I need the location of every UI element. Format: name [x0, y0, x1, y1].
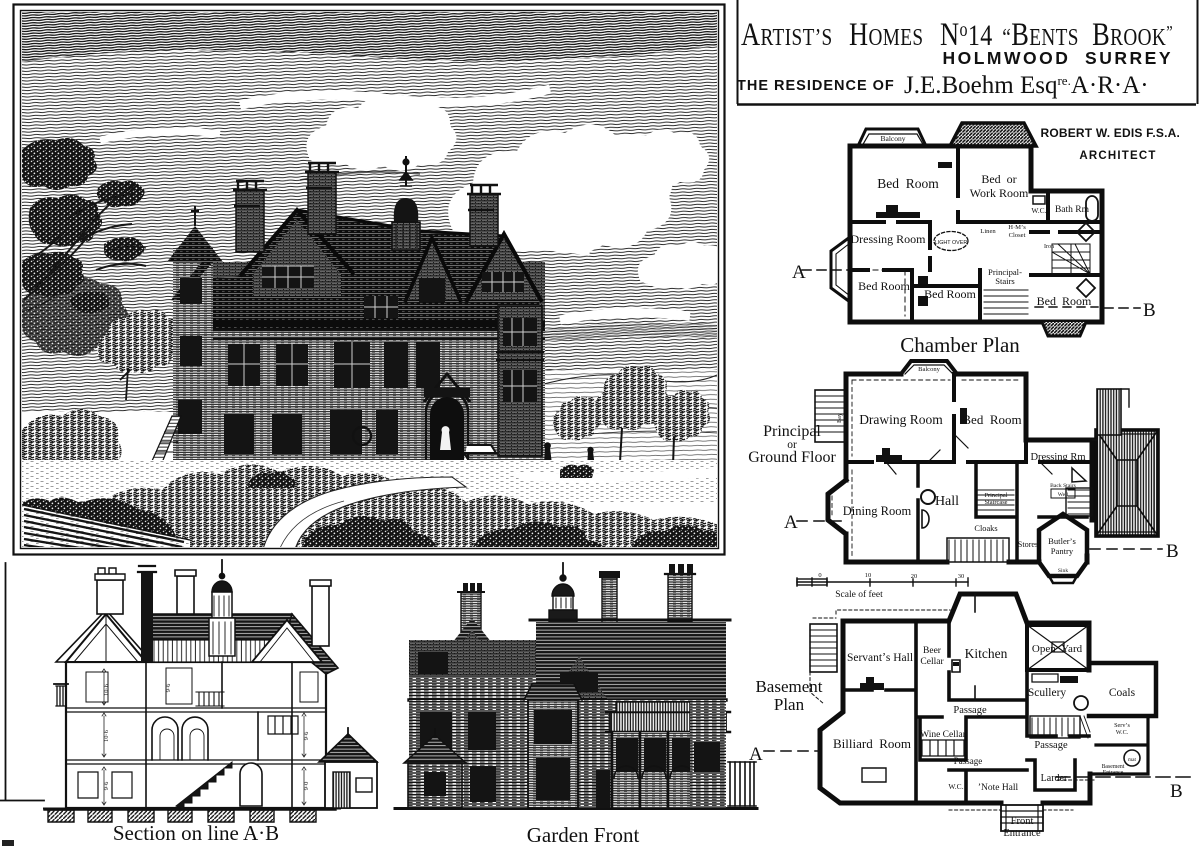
svg-text:LIGHT OVER: LIGHT OVER: [935, 240, 968, 246]
svg-text:Sink: Sink: [1058, 568, 1068, 574]
svg-text:Ground Floor: Ground Floor: [748, 449, 836, 466]
svg-text:Stores: Stores: [1018, 540, 1038, 549]
svg-text:Cloaks: Cloaks: [974, 524, 997, 533]
svg-text:30: 30: [958, 573, 965, 580]
svg-text:Balcony: Balcony: [881, 134, 906, 143]
svg-text:Entrance: Entrance: [1003, 828, 1041, 839]
svg-text:ʼNote Hall: ʼNote Hall: [978, 783, 1019, 793]
svg-text:Servʼs: Servʼs: [1114, 722, 1130, 729]
svg-text:Closet: Closet: [1009, 232, 1026, 239]
svg-text:ROBERT W. EDIS F.S.A.: ROBERT W. EDIS F.S.A.: [1040, 126, 1180, 140]
svg-text:B: B: [1170, 781, 1183, 802]
svg-text:Billiard Room: Billiard Room: [833, 736, 911, 751]
svg-text:Passage: Passage: [1034, 740, 1068, 751]
svg-text:Balcony: Balcony: [918, 366, 940, 373]
svg-text:Butlerʼs: Butlerʼs: [1048, 536, 1076, 546]
svg-text:Bath Rm: Bath Rm: [1055, 205, 1090, 215]
svg-text:20: 20: [911, 573, 918, 580]
svg-text:Drawing Room: Drawing Room: [859, 412, 943, 427]
svg-text:Pantry: Pantry: [1051, 546, 1074, 556]
svg-text:W.C.: W.C.: [948, 782, 963, 791]
svg-text:Plan: Plan: [774, 695, 805, 714]
svg-text:Basement: Basement: [755, 677, 822, 696]
svg-text:Passage: Passage: [954, 756, 983, 766]
svg-text:Cellar: Cellar: [920, 657, 944, 667]
svg-text:Larder: Larder: [1041, 773, 1068, 784]
svg-text:Principal: Principal: [984, 492, 1007, 499]
svg-text:Stairs: Stairs: [995, 276, 1015, 286]
svg-text:Back Stairs: Back Stairs: [1050, 483, 1076, 489]
svg-text:Open Yard: Open Yard: [1032, 643, 1083, 655]
svg-text:0: 0: [818, 572, 821, 579]
svg-text:H·Mʼs: H·Mʼs: [1008, 224, 1026, 231]
svg-text:Iron: Iron: [1044, 244, 1054, 250]
svg-text:Dressing Rm: Dressing Rm: [1030, 452, 1085, 463]
svg-text:Dressing Room: Dressing Room: [851, 232, 927, 246]
svg-text:Well: Well: [1058, 492, 1069, 498]
svg-text:Wine Cellar: Wine Cellar: [920, 730, 967, 740]
svg-text:W.C.: W.C.: [1031, 206, 1046, 215]
svg-text:HOLMWOOD SURREY: HOLMWOOD SURREY: [942, 48, 1173, 68]
svg-text:Front: Front: [1011, 816, 1034, 827]
svg-text:Bed Room: Bed Room: [924, 287, 976, 301]
svg-text:Bed Room: Bed Room: [877, 176, 939, 191]
svg-text:Hall: Hall: [935, 494, 959, 509]
svg-text:THE RESIDENCE OF: THE RESIDENCE OF: [737, 78, 895, 94]
svg-text:ARCHITECT: ARCHITECT: [1079, 150, 1156, 162]
svg-text:Staircase: Staircase: [984, 499, 1007, 506]
svg-text:Beer: Beer: [923, 646, 942, 656]
svg-text:Garden Front: Garden Front: [527, 823, 640, 847]
svg-text:A: A: [784, 512, 798, 533]
svg-text:Section on line A·B: Section on line A·B: [113, 821, 279, 845]
svg-text:Bed Room: Bed Room: [1037, 294, 1092, 308]
svg-text:Chamber Plan: Chamber Plan: [900, 333, 1020, 357]
svg-text:Entrance: Entrance: [1103, 770, 1124, 776]
svg-text:Scale of feet: Scale of feet: [835, 589, 883, 600]
svg-text:Linen: Linen: [980, 228, 996, 235]
svg-text:Servantʼs Hall: Servantʼs Hall: [847, 652, 913, 664]
svg-text:10: 10: [865, 572, 872, 579]
svg-text:Principal: Principal: [763, 423, 821, 440]
svg-text:A: A: [792, 262, 806, 283]
svg-text:mat: mat: [1128, 757, 1137, 763]
svg-text:B: B: [1166, 541, 1179, 562]
svg-text:J.E.Boehm Esqre.A·R·A·: J.E.Boehm Esqre.A·R·A·: [904, 72, 1149, 99]
svg-text:Bay: Bay: [837, 413, 843, 423]
svg-text:9·6: 9·6: [165, 683, 172, 692]
svg-text:Passage: Passage: [953, 705, 987, 716]
svg-text:Coals: Coals: [1109, 687, 1136, 699]
svg-text:Kitchen: Kitchen: [965, 646, 1008, 661]
svg-text:Bed or: Bed or: [981, 172, 1016, 186]
svg-text:Bed Room: Bed Room: [962, 412, 1021, 427]
svg-text:Work Room: Work Room: [970, 186, 1029, 200]
svg-text:Dining Room: Dining Room: [843, 504, 912, 518]
svg-text:W.C.: W.C.: [1116, 729, 1129, 736]
svg-text:B: B: [1143, 300, 1156, 321]
svg-text:Bed Room: Bed Room: [858, 279, 910, 293]
svg-text:Scullery: Scullery: [1028, 687, 1067, 699]
